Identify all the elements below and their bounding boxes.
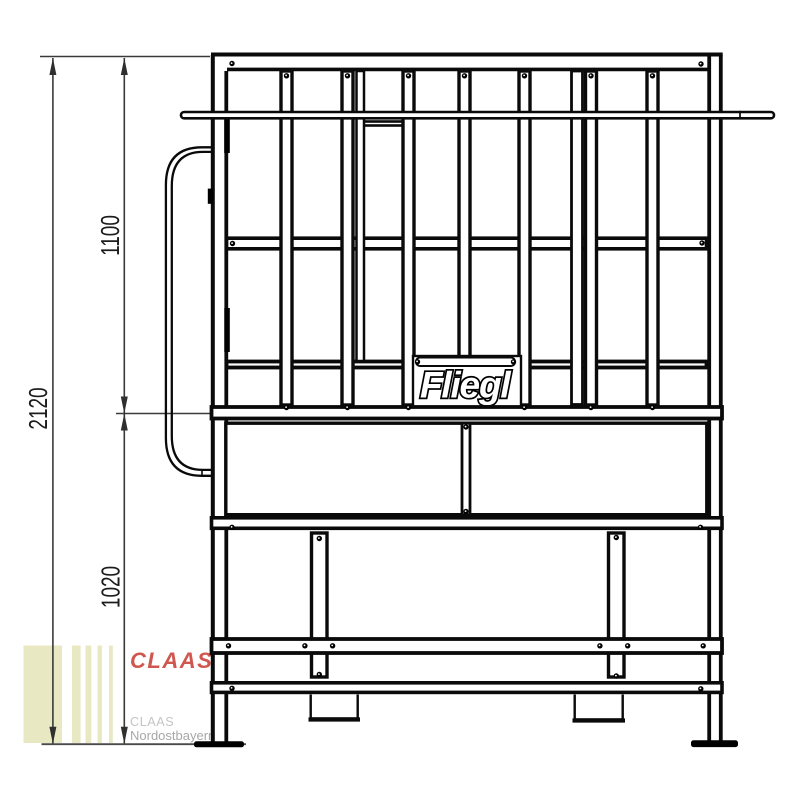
svg-text:CLAAS: CLAAS bbox=[130, 715, 174, 729]
svg-text:Nordostbayern: Nordostbayern bbox=[130, 728, 215, 743]
svg-text:1100: 1100 bbox=[95, 215, 125, 256]
svg-text:1020: 1020 bbox=[95, 566, 125, 608]
svg-text:CLAAS: CLAAS bbox=[130, 648, 213, 673]
svg-text:Fliegl: Fliegl bbox=[420, 365, 511, 406]
svg-text:2120: 2120 bbox=[23, 387, 53, 429]
